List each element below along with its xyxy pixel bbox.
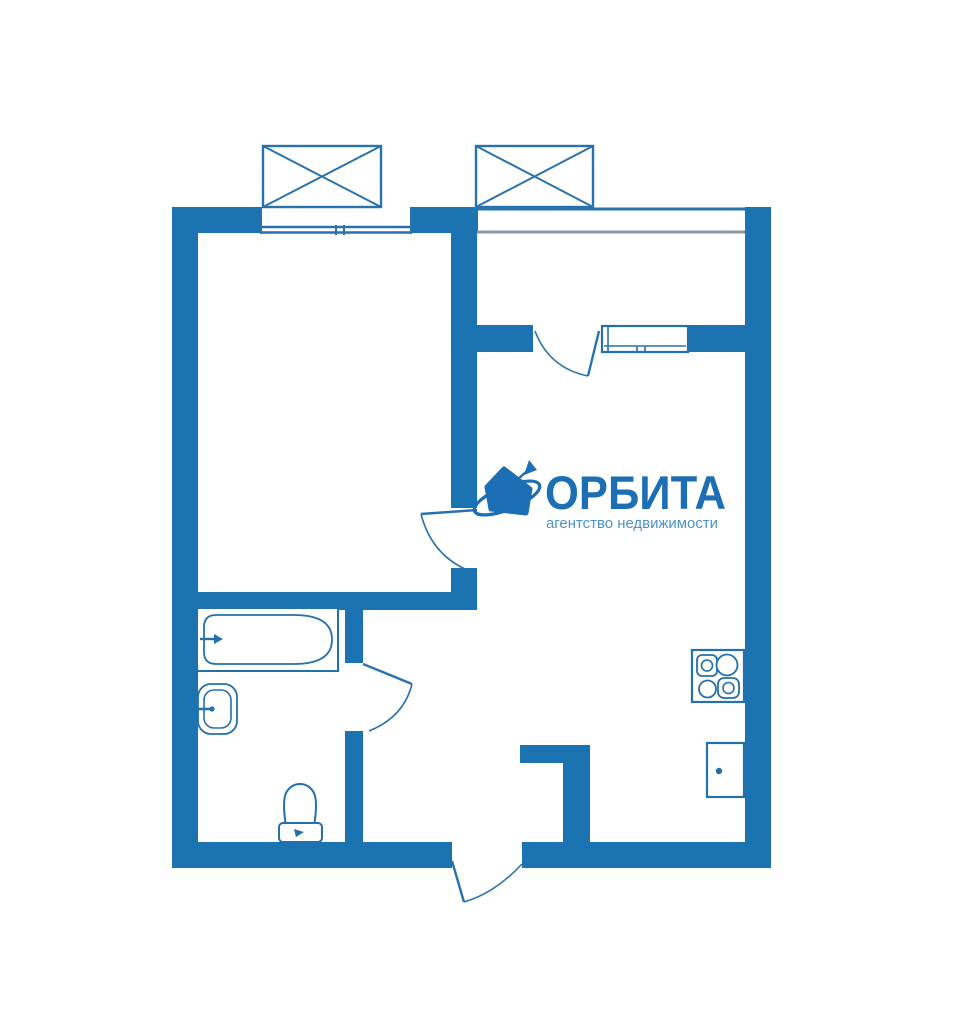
wall-top-left bbox=[172, 207, 261, 233]
loggia-window bbox=[602, 326, 688, 352]
kitchen-sink-outline bbox=[707, 743, 744, 797]
kitchen-sink-drain bbox=[716, 768, 722, 774]
loggia-door bbox=[535, 331, 599, 376]
bathtub-basin bbox=[204, 615, 332, 664]
kitchen-sink-icon bbox=[707, 743, 744, 797]
walls bbox=[172, 207, 771, 868]
balcony-left bbox=[263, 146, 381, 207]
balcony-right bbox=[476, 146, 593, 207]
toilet-icon bbox=[279, 784, 322, 842]
bedroom-door-arc bbox=[421, 514, 465, 569]
wall-loggia-left bbox=[477, 325, 533, 352]
wall-bathroom-lower bbox=[345, 731, 363, 842]
wall-bottom-right bbox=[522, 842, 771, 868]
bedroom-door bbox=[421, 510, 477, 569]
balcony-right-cross-icon bbox=[476, 146, 593, 207]
bathroom-door-leaf bbox=[363, 664, 412, 684]
wall-right bbox=[745, 207, 771, 868]
bathtub-icon bbox=[197, 608, 338, 671]
floor-plan-page: ОРБИТА агентство недвижимости bbox=[0, 0, 967, 1024]
loggia-door-leaf bbox=[588, 331, 599, 376]
toilet-bowl bbox=[284, 784, 316, 826]
loggia-glazing bbox=[477, 209, 745, 232]
bathroom-door bbox=[363, 664, 412, 731]
wall-bedroom-right-upper bbox=[451, 207, 477, 508]
logo-subtitle: агентство недвижимости bbox=[546, 515, 718, 532]
bedroom-window-ticks bbox=[261, 207, 411, 235]
washbasin-icon bbox=[198, 684, 237, 734]
orbit-arrow-tail bbox=[518, 472, 526, 479]
bedroom-door-leaf bbox=[421, 510, 477, 514]
stove-burner-br-ring bbox=[723, 683, 734, 694]
washbasin-drain bbox=[209, 706, 214, 711]
entrance-door bbox=[452, 861, 522, 902]
bedroom-window bbox=[260, 207, 412, 235]
wall-bathroom-upper bbox=[345, 610, 363, 663]
stove-burner-bl bbox=[699, 681, 716, 698]
floor-plan-canvas: ОРБИТА агентство недвижимости bbox=[0, 0, 967, 1024]
wall-loggia-right bbox=[688, 325, 745, 352]
stove-burner-tl-ring bbox=[702, 660, 713, 671]
wall-kitchen-partition-stub bbox=[520, 745, 590, 763]
wall-bottom-left bbox=[172, 842, 452, 868]
bathroom-door-arc bbox=[369, 684, 412, 731]
loggia-door-arc bbox=[535, 331, 588, 376]
wall-left bbox=[172, 207, 198, 868]
agency-logo: ОРБИТА агентство недвижимости bbox=[470, 460, 726, 532]
entrance-door-arc bbox=[464, 864, 522, 902]
stove-burner-tr bbox=[717, 655, 738, 676]
entrance-door-leaf bbox=[452, 861, 464, 902]
logo-title: ОРБИТА bbox=[545, 466, 726, 519]
house-orbit-icon bbox=[470, 460, 544, 522]
stove-icon bbox=[692, 650, 744, 702]
balcony-left-cross-icon bbox=[263, 146, 381, 207]
